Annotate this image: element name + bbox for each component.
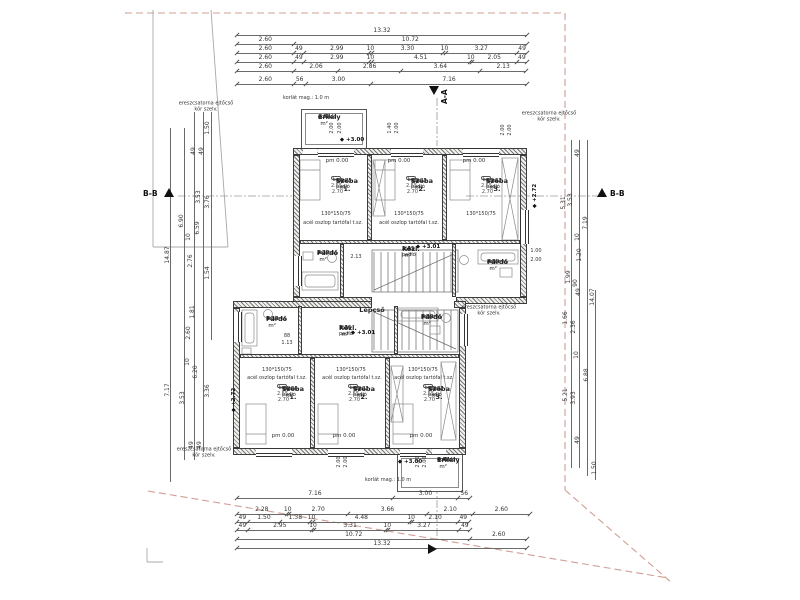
annotation: 130*150/75: [262, 368, 292, 374]
dim-label: 10.72: [402, 37, 419, 43]
rarea: 3.73 m²: [266, 316, 278, 329]
dim-label: 3.64: [434, 64, 447, 70]
dim-label: 3.27: [417, 523, 430, 529]
dim-label: 2.76: [188, 254, 194, 267]
rarea: 4.83 m²: [487, 259, 499, 272]
dim-label: 2.60: [259, 64, 272, 70]
dim-label: 10: [185, 358, 191, 366]
section-marker-bb-left-icon: [164, 188, 174, 197]
dim-label: 2.60: [259, 55, 272, 61]
dim-label: 7.16: [442, 77, 455, 83]
annotation: 2.00: [508, 124, 514, 135]
dim-label: 56: [460, 491, 468, 497]
dim-label: 49: [239, 523, 247, 529]
dim-label: 2.86: [363, 64, 376, 70]
dim-label: 7.16: [308, 491, 321, 497]
rarea: 4.83 m²: [421, 314, 433, 327]
annotation: 1.00: [530, 249, 541, 255]
stair-label: Lépcső: [359, 306, 384, 314]
dim-label: 7.19: [583, 216, 589, 229]
sill-level-label: pm 0.00: [463, 158, 486, 164]
dim-label: 10.72: [345, 532, 362, 538]
dim-label: 2.13: [496, 64, 509, 70]
dimension-tick: [524, 546, 529, 551]
sill-level-label: pm 0.00: [388, 158, 411, 164]
dim-label: 6.20: [193, 365, 199, 378]
floor-plan-drawing: A-A B-B B-B 13.322.6010.722.60492.99103.…: [0, 0, 800, 600]
annotation: 130*150/75: [408, 368, 438, 374]
room-height-note: bm: 2.55-2.70: [481, 177, 494, 195]
dimension-line: [237, 53, 527, 54]
dim-label: 1.50: [205, 121, 211, 134]
dim-label: 10: [186, 233, 192, 241]
dim-label: 1.20: [577, 248, 583, 261]
dim-label: 49: [576, 288, 582, 296]
rarea: 5.36 m²: [339, 325, 351, 338]
section-label-bb-left: B-B: [143, 189, 158, 198]
dim-label: 2.10: [428, 515, 441, 521]
rarea: 4.50 m²: [318, 114, 330, 127]
annotation: 2.00: [338, 122, 344, 133]
dimension-line: [237, 84, 527, 85]
annotation: ereszcsatorna ejtőcső kör szelv.: [522, 111, 576, 123]
section-label-aa-top: A-A: [440, 89, 449, 104]
dimension-tick: [524, 537, 529, 542]
dim-label: 6.88: [584, 368, 590, 381]
dim-label: 13.32: [373, 541, 390, 547]
dim-label: 2.10: [443, 507, 456, 513]
dim-label: 3.00: [332, 77, 345, 83]
dimension-tick: [527, 512, 532, 517]
dim-label: 49: [295, 55, 303, 61]
dim-label: 7.17: [165, 383, 171, 396]
dim-label: 90: [573, 279, 579, 287]
dim-label: 49: [461, 523, 469, 529]
annotation: acél oszlop tartófal t.sz.: [394, 376, 454, 382]
sill-level-label: pm 0.00: [326, 158, 349, 164]
dim-label: 1.38: [289, 515, 302, 521]
dim-label: 1.54: [205, 266, 211, 279]
dim-label: 2.60: [259, 77, 272, 83]
dimension-line: [571, 140, 572, 468]
annotation: acél oszlop tartófal t.sz.: [303, 221, 363, 227]
dim-label: 49: [199, 147, 205, 155]
rarea: 5.43 m²: [402, 246, 414, 259]
room-height-note: bm: 2.55-2.70: [331, 177, 344, 195]
dimension-line: [184, 128, 185, 460]
annotation: 2.00: [423, 456, 429, 467]
dimension-line: [237, 498, 470, 499]
dim-label: 2.05: [488, 55, 501, 61]
dim-label: 10: [575, 233, 581, 241]
rarea: 3.72 m²: [317, 250, 329, 263]
annotation: 2.00: [337, 456, 343, 467]
annotation: 130*150/75: [321, 212, 351, 218]
dim-label: 2.60: [492, 532, 505, 538]
labels-layer: 13.322.6010.722.60492.99103.30103.27492.…: [0, 0, 800, 600]
room-height-note: bm: 2.55-2.70: [277, 385, 290, 403]
dim-label: 56: [296, 77, 304, 83]
dim-label: 2.95: [273, 523, 286, 529]
dim-label: 2.70: [312, 507, 325, 513]
dimension-line: [579, 140, 580, 468]
dim-label: 1.50: [257, 515, 270, 521]
dimension-line: [587, 140, 588, 476]
annotation: 2.13: [350, 255, 361, 261]
annotation: 2.00: [395, 122, 401, 133]
annotation: 2.00: [501, 124, 507, 135]
dim-label: 4.51: [414, 55, 427, 61]
dimension-line: [194, 112, 195, 460]
dim-label: 2.60: [259, 37, 272, 43]
sill-level-label: pm 0.00: [333, 433, 356, 439]
dim-label: 2.99: [330, 55, 343, 61]
dimension-line: [211, 112, 212, 340]
dimension-line: [203, 112, 204, 452]
dim-label: 2.06: [309, 64, 322, 70]
dimension-line: [170, 128, 171, 482]
dim-label: 3.76: [205, 195, 211, 208]
room-height-note: bm: 2.55-2.70: [423, 385, 436, 403]
annotation: 2.00: [330, 122, 336, 133]
dim-label: 49: [575, 436, 581, 444]
dim-label: 2.36: [571, 320, 577, 333]
annotation: 2.00: [344, 456, 350, 467]
room-height-note: bm: 2.55-2.70: [406, 177, 419, 195]
dim-label: 6.59: [195, 221, 201, 234]
dim-label: 1.66: [563, 311, 569, 324]
section-label-bb-right: B-B: [610, 189, 625, 198]
dim-label: 6.90: [179, 214, 185, 227]
dim-label: 3.31: [343, 523, 356, 529]
room-height-note: bm: 2.55-2.70: [348, 385, 361, 403]
dimension-tick: [524, 69, 529, 74]
dim-label: 49: [518, 46, 526, 52]
dim-label: 49: [295, 46, 303, 52]
dim-label: 3.53: [568, 193, 574, 206]
dim-label: 10: [574, 351, 580, 359]
dim-label: 13.32: [373, 28, 390, 34]
dim-label: 49: [459, 515, 467, 521]
section-marker-aa-top-icon: [429, 86, 439, 95]
sill-level-label: pm 0.00: [410, 433, 433, 439]
dim-label: 3.66: [381, 507, 394, 513]
dimension-line: [237, 71, 526, 72]
dim-label: 4.48: [355, 515, 368, 521]
dimension-line: [595, 290, 596, 480]
dim-label: 1.81: [190, 305, 196, 318]
level-marker: ◆ +3.00: [340, 137, 364, 143]
annotation: acél oszlop tartófal t.sz.: [379, 221, 439, 227]
dim-label: 2.60: [186, 326, 192, 339]
annotation: korlát mag.: 1.0 m: [283, 96, 329, 102]
dim-label: 49: [518, 55, 526, 61]
annotation: 2.00: [416, 456, 422, 467]
dim-label: 3.53: [180, 391, 186, 404]
dimension-line: [237, 548, 527, 549]
annotation: ereszcsatorna ejtőcső kör szelv.: [462, 305, 516, 317]
annotation: 1.40: [388, 122, 394, 133]
dimension-line: [237, 514, 530, 515]
dim-label: 2.60: [495, 507, 508, 513]
annotation: 1.13: [281, 341, 292, 347]
dim-label: 49: [191, 147, 197, 155]
dim-label: 3.53: [196, 190, 202, 203]
dim-label: 14.87: [165, 246, 171, 263]
annotation: 88: [284, 334, 290, 340]
dimension-tick: [468, 496, 473, 501]
dim-label: 2.60: [259, 46, 272, 52]
annotation: 2.00: [530, 258, 541, 264]
annotation: 130*150/75: [336, 368, 366, 374]
annotation: 130*150/75: [466, 212, 496, 218]
section-marker-aa-bottom-icon: [428, 544, 437, 554]
annotation: acél oszlop tartófal t.sz.: [247, 376, 307, 382]
dim-label: 3.30: [401, 46, 414, 52]
annotation: acél oszlop tartófal t.sz.: [322, 376, 382, 382]
level-marker: ◆ +2.72: [231, 388, 237, 412]
dimension-tick: [524, 33, 529, 38]
dim-label: 3.00: [419, 491, 432, 497]
annotation: ereszcsatorna ejtőcső kör szelv.: [177, 447, 231, 459]
section-marker-bb-right-icon: [597, 188, 607, 197]
annotation: korlát mag.: 1.0 m: [365, 478, 411, 484]
dim-label: 5.31: [561, 196, 567, 209]
level-marker: ◆ +2.72: [532, 184, 538, 208]
sill-level-label: pm 0.00: [272, 433, 295, 439]
rarea: 4.47 m²: [437, 457, 449, 470]
dim-label: 5.21: [563, 388, 569, 401]
dim-label: 2.99: [330, 46, 343, 52]
dim-label: 3.36: [205, 384, 211, 397]
dim-label: 3.27: [474, 46, 487, 52]
dim-label: 49: [575, 149, 581, 157]
dimension-line: [237, 35, 527, 36]
dim-label: 3.93: [571, 391, 577, 404]
dim-label: 1.50: [592, 461, 598, 474]
dim-label: 49: [239, 515, 247, 521]
dim-label: 2.28: [255, 507, 268, 513]
dimension-line: [237, 62, 527, 63]
dim-label: 14.07: [590, 288, 596, 305]
annotation: ereszcsatorna ejtőcső kör szelv.: [179, 101, 233, 113]
annotation: 130*150/75: [394, 212, 424, 218]
dimension-tick: [524, 82, 529, 87]
